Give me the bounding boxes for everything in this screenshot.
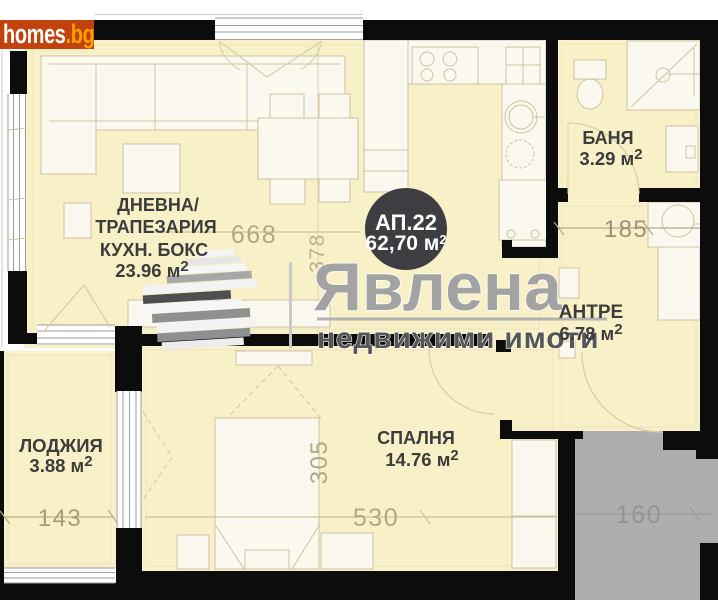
svg-text:БАНЯ: БАНЯ — [582, 128, 633, 148]
svg-text:668: 668 — [231, 221, 277, 249]
svg-text:23.96 м2: 23.96 м2 — [115, 258, 188, 281]
svg-text:недвижими имоти: недвижими имоти — [317, 322, 599, 355]
svg-text:530: 530 — [353, 504, 399, 532]
svg-text:3.29 м2: 3.29 м2 — [579, 146, 642, 169]
svg-text:Явлена: Явлена — [313, 249, 563, 325]
svg-text:185: 185 — [604, 216, 649, 243]
svg-text:КУХН. БОКС: КУХН. БОКС — [100, 240, 208, 260]
svg-text:143: 143 — [38, 505, 83, 532]
svg-text:3.88 м2: 3.88 м2 — [29, 453, 92, 476]
svg-text:ТРАПЕЗАРИЯ: ТРАПЕЗАРИЯ — [95, 217, 216, 237]
svg-text:160: 160 — [616, 501, 662, 529]
svg-text:СПАЛНЯ: СПАЛНЯ — [377, 428, 455, 448]
svg-text:305: 305 — [306, 440, 333, 485]
svg-text:homes.bg: homes.bg — [3, 19, 94, 50]
svg-text:14.76 м2: 14.76 м2 — [385, 447, 458, 470]
svg-text:62,70 м2: 62,70 м2 — [365, 232, 446, 255]
svg-text:АНТРЕ: АНТРЕ — [559, 302, 623, 323]
svg-text:ДНЕВНА/: ДНЕВНА/ — [117, 195, 199, 215]
svg-text:6.78 м2: 6.78 м2 — [559, 321, 622, 344]
